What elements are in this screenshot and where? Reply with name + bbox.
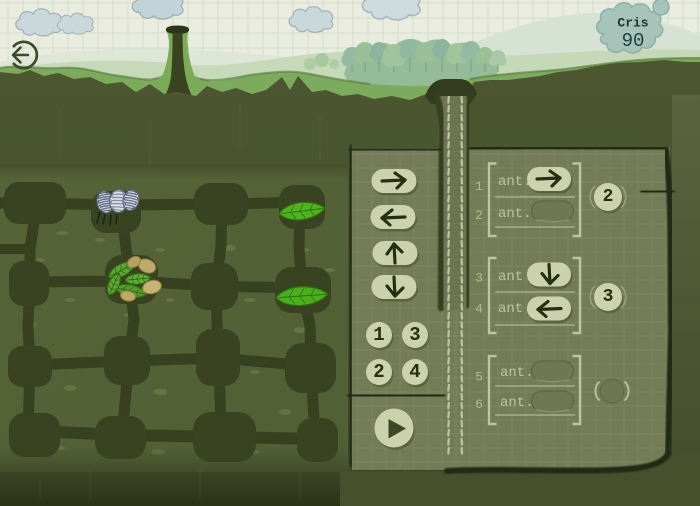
svg-text:6: 6 bbox=[475, 397, 483, 412]
svg-text:Cris: Cris bbox=[617, 16, 648, 31]
svg-text:3: 3 bbox=[475, 271, 483, 286]
svg-text:1: 1 bbox=[373, 324, 384, 346]
svg-text:3: 3 bbox=[409, 324, 420, 346]
svg-text:3: 3 bbox=[603, 287, 614, 307]
svg-text:2: 2 bbox=[475, 208, 483, 223]
svg-text:1: 1 bbox=[475, 179, 483, 194]
svg-text:90: 90 bbox=[622, 30, 645, 52]
svg-text:ant.: ant. bbox=[500, 365, 534, 381]
svg-text:ant.: ant. bbox=[498, 174, 532, 190]
svg-text:ant: ant bbox=[498, 269, 523, 285]
svg-text:4: 4 bbox=[475, 302, 483, 317]
svg-text:5: 5 bbox=[475, 370, 483, 385]
svg-text:ant.: ant. bbox=[500, 395, 534, 411]
svg-text:2: 2 bbox=[373, 361, 384, 383]
svg-text:4: 4 bbox=[409, 361, 420, 383]
svg-text:ant: ant bbox=[498, 301, 523, 317]
svg-text:ant.: ant. bbox=[498, 206, 532, 222]
svg-text:2: 2 bbox=[603, 187, 614, 207]
